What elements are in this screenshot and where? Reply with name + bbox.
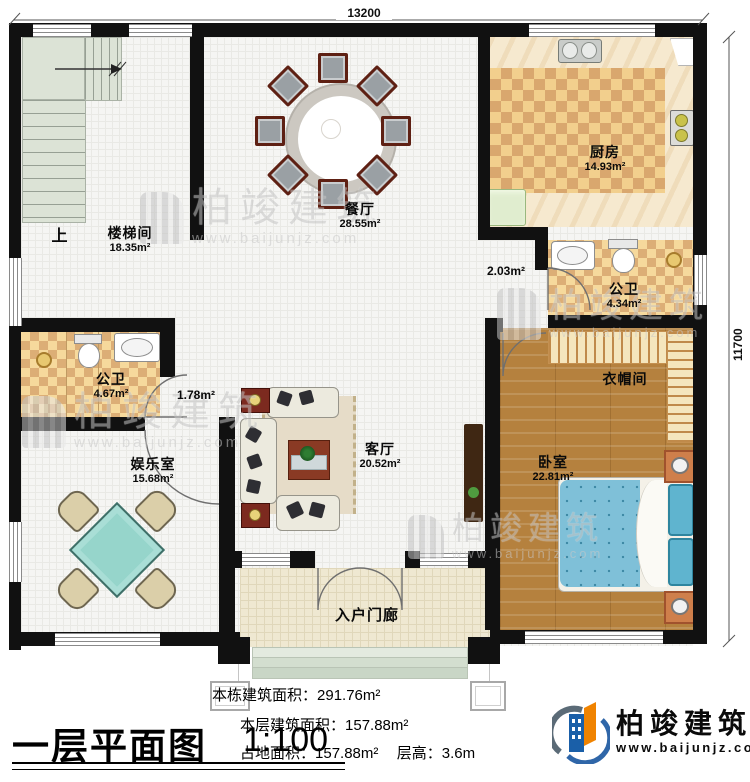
dining-chair-icon — [381, 116, 411, 146]
wall-bath-top-bottom — [548, 315, 693, 328]
stat-label: 本层建筑面积： — [240, 717, 345, 734]
room-label-bedroom: 卧室 22.81m² — [515, 455, 591, 483]
room-area: 14.93m² — [560, 161, 650, 173]
brand-name: 柏竣建筑 — [616, 709, 750, 738]
bed-pillow2 — [668, 538, 694, 586]
cloakroom-wardrobe-right — [667, 331, 695, 443]
stat-footprint: 占地面积：157.88m² 层高：3.6m — [240, 742, 475, 763]
room-name: 衣帽间 — [580, 372, 670, 388]
room-name: 入户门廊 — [312, 608, 422, 625]
stat-label: 本栋建筑面积： — [212, 687, 317, 704]
side-table-ornament — [249, 394, 261, 406]
cloakroom-wardrobe-top — [548, 331, 672, 364]
bed-pillow — [668, 484, 694, 536]
room-name: 公卫 — [588, 282, 660, 298]
room-area: 22.81m² — [515, 471, 591, 483]
bed-sheet — [636, 480, 667, 587]
stat-value: 3.6m — [442, 745, 475, 762]
stat-value: 157.88m² — [345, 717, 408, 734]
floor-plan: 柏竣建筑 www.baijunjz.com 柏竣建筑 www.baijunjz.… — [0, 0, 750, 782]
bath-left-partition — [66, 332, 67, 417]
stove-burner — [675, 114, 688, 127]
up-label: 上 — [45, 228, 75, 246]
stat-building-total: 本栋建筑面积：291.76m² — [212, 684, 380, 705]
room-area: 20.52m² — [340, 458, 420, 470]
sofa-pillow — [246, 479, 261, 494]
tv-cabinet — [464, 424, 483, 522]
room-area: 4.34m² — [588, 298, 660, 310]
stat-value: 291.76m² — [317, 687, 380, 704]
wall-living-south — [468, 551, 500, 568]
window — [33, 24, 91, 37]
stair-upper-flight — [84, 37, 122, 101]
room-label-porch: 入户门廊 — [312, 608, 422, 625]
wall-living-south — [290, 551, 315, 568]
brand-site: www.baijunjz.com — [616, 740, 750, 755]
room-label-living: 客厅 20.52m² — [340, 442, 420, 470]
wall-bath-left-right — [160, 318, 175, 377]
area-annotation-left: 1.78m² — [177, 388, 215, 402]
wall-kitchen-left — [478, 37, 490, 237]
room-area: 15.68m² — [105, 473, 201, 485]
porch-pier — [468, 637, 500, 664]
stair-main-flight — [22, 99, 86, 223]
bed-quilt — [560, 480, 640, 587]
dining-chair-icon — [318, 53, 348, 83]
brand-logo-icon — [552, 700, 610, 764]
window — [420, 553, 468, 566]
brand-logo: 柏竣建筑 www.baijunjz.com — [552, 700, 750, 764]
window — [129, 24, 192, 37]
wall-ent-living — [219, 417, 235, 646]
porch-pier — [218, 637, 250, 664]
room-label-dining: 餐厅 28.55m² — [320, 202, 400, 230]
room-label-cloakroom: 衣帽间 — [580, 372, 670, 388]
room-label-bath-top: 公卫 4.34m² — [588, 282, 660, 310]
stat-floor-area: 本层建筑面积：157.88m² — [240, 714, 408, 735]
side-table-ornament2 — [249, 509, 261, 521]
tv-plant-icon — [468, 487, 479, 498]
plan-title-text: 一层平面图 — [12, 726, 207, 767]
room-name: 楼梯间 — [90, 226, 170, 242]
wall-bedroom-left — [485, 330, 500, 630]
wall-stair-dining — [190, 37, 204, 240]
up-text: 上 — [45, 228, 75, 246]
wall-bath-top-left — [535, 240, 548, 270]
room-area: 28.55m² — [320, 218, 400, 230]
wall-kitchen-bottom — [478, 227, 548, 240]
room-area: 4.67m² — [78, 388, 144, 400]
title-underline — [12, 762, 345, 770]
room-label-kitchen: 厨房 14.93m² — [560, 145, 650, 173]
shower-head-icon — [666, 252, 682, 268]
window — [9, 258, 22, 326]
room-name: 公卫 — [78, 372, 144, 388]
stair-landing — [22, 37, 86, 101]
window — [694, 255, 707, 305]
room-name: 卧室 — [515, 455, 591, 471]
kitchen-sink-basin2 — [581, 42, 597, 59]
window — [9, 522, 22, 582]
sink-bowl2 — [121, 338, 153, 357]
wall-living-south — [405, 551, 420, 568]
dining-table-center — [321, 119, 341, 139]
wall-ent-top — [21, 417, 145, 431]
kitchen-tiles — [490, 68, 665, 193]
shower-head-icon2 — [36, 352, 52, 368]
wall-right — [693, 23, 707, 643]
kitchen-sink-basin — [562, 42, 578, 59]
room-name: 厨房 — [560, 145, 650, 161]
fridge-icon — [484, 189, 526, 226]
sink-bowl — [557, 246, 588, 265]
room-label-bath-left: 公卫 4.67m² — [78, 372, 144, 400]
stat-label: 层高： — [397, 745, 442, 762]
stat-label: 占地面积： — [240, 745, 315, 762]
stat-value: 157.88m² — [315, 745, 378, 762]
area-annotation-right: 2.03m² — [487, 264, 525, 278]
window — [242, 553, 290, 566]
window — [55, 633, 160, 646]
dining-chair-icon — [255, 116, 285, 146]
room-name: 客厅 — [340, 442, 420, 458]
dimension-top: 13200 — [336, 6, 392, 20]
porch-step — [252, 667, 468, 679]
porch-pillar — [470, 681, 506, 711]
room-label-stair: 楼梯间 18.35m² — [90, 226, 170, 254]
dimension-right: 11700 — [731, 310, 747, 380]
window — [529, 24, 655, 37]
wall-living-south — [228, 551, 242, 568]
plant-icon — [300, 446, 315, 461]
window — [525, 631, 663, 644]
room-name: 餐厅 — [320, 202, 400, 218]
toilet-icon — [612, 248, 635, 273]
room-name: 娱乐室 — [105, 457, 201, 473]
wall-bath-left-top — [21, 318, 175, 332]
toilet-icon2 — [78, 343, 100, 368]
room-area: 18.35m² — [90, 242, 170, 254]
room-label-entertainment: 娱乐室 15.68m² — [105, 457, 201, 485]
stove-burner2 — [675, 129, 688, 142]
